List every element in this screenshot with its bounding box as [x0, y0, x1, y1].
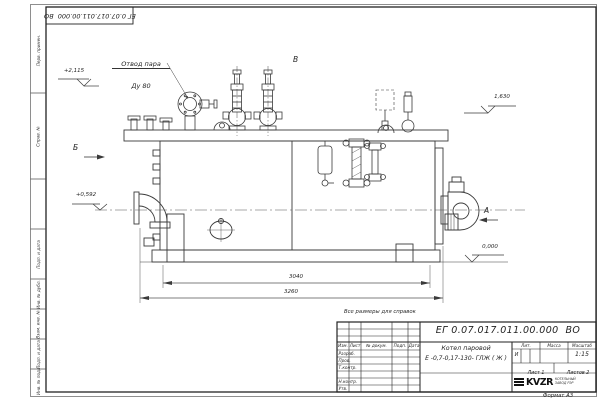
margin-label-podp-data-1: Подп. и дата — [31, 229, 46, 279]
col-header-podp: Подп. — [392, 344, 408, 348]
steam-outlet-label: Отвод пара Ду 80 — [112, 47, 170, 104]
elevation-right: 1,630 — [487, 95, 517, 101]
steam-outlet-leader — [167, 63, 188, 98]
scale-value: 1:15 — [568, 352, 596, 359]
view-label-b: Б — [73, 144, 78, 152]
elevation-marks — [58, 79, 516, 262]
format-label: Формат А3 — [520, 394, 596, 400]
elevation-base: 0,000 — [474, 245, 506, 251]
col-header-data: Дата — [408, 344, 420, 348]
doc-number-top-text: ЕГ 0.07.017.011.00.000 ВО — [44, 12, 136, 20]
margin-label-inv-dubl: Инв. № дубл. — [31, 279, 46, 309]
elevation-top-left: +2,115 — [56, 69, 92, 75]
view-label-v: В — [293, 56, 298, 64]
view-label-a: А — [484, 207, 489, 215]
boiler-assembly-linework — [0, 0, 600, 400]
level-gauges — [318, 139, 386, 187]
title-block-doc-number: ЕГ 0.07.017.011.00.000 ВО — [422, 326, 594, 336]
product-name-line2: Е -0,7-0,17-130- ГЛЖ ( Ж ) — [421, 356, 511, 362]
margin-label-sprav-no: Справ. № — [31, 93, 46, 179]
doc-number-top: ЕГ 0.07.017.011.00.000 ВО — [46, 7, 133, 24]
row-label-prov: Пров. — [339, 359, 351, 363]
margin-label-inv-podl: Инв. № подл. — [31, 369, 46, 392]
company-name: КОТЕЛЬНЫЙ ЗАВОД РЭР — [555, 378, 576, 386]
product-name-line1: Котел паровой — [421, 346, 511, 353]
margin-label-vzam-inv: Взам. инв. № — [31, 309, 46, 339]
boiler-body — [124, 130, 508, 262]
scale-header: Масштаб — [568, 344, 596, 348]
mass-header: Масса — [540, 344, 568, 348]
view-arrows — [84, 155, 498, 223]
kvzr-logo-text: KVZR — [526, 377, 553, 388]
row-label-utv: Утв. — [339, 387, 348, 391]
steam-outlet-label-line1: Отвод пара — [112, 61, 170, 70]
row-label-tkontr: Т.контр. — [339, 366, 357, 370]
margin-label-perv-primen: Перв. примен. — [31, 7, 46, 93]
lit-header: Лит. — [512, 344, 540, 348]
top-fittings — [128, 66, 414, 136]
dimension-3260: 3260 — [266, 290, 316, 296]
steam-outlet-label-line2: Ду 80 — [112, 83, 170, 90]
burner — [441, 177, 479, 230]
row-label-razrab: Разраб. — [339, 352, 355, 356]
margin-label-podp-data-2: Подп. и дата — [31, 339, 46, 369]
kvzr-logo-icon — [514, 378, 524, 387]
col-header-list: Лист — [349, 344, 361, 348]
reference-note: Все размеры для справок — [344, 310, 416, 316]
col-header-izm: Изм. — [337, 344, 349, 348]
company-cell: KVZR КОТЕЛЬНЫЙ ЗАВОД РЭР — [514, 374, 594, 390]
company-name-line2: ЗАВОД РЭР — [555, 382, 576, 386]
lit-value: И — [512, 353, 521, 358]
elevation-left: +0,592 — [68, 193, 104, 199]
col-header-doc: № докум. — [361, 344, 392, 348]
dimension-3040: 3040 — [271, 275, 321, 281]
drawing-sheet: ЕГ 0.07.017.011.00.000 ВО Перв. примен. … — [0, 0, 600, 400]
row-label-nkontr: Н.контр. — [339, 380, 358, 384]
